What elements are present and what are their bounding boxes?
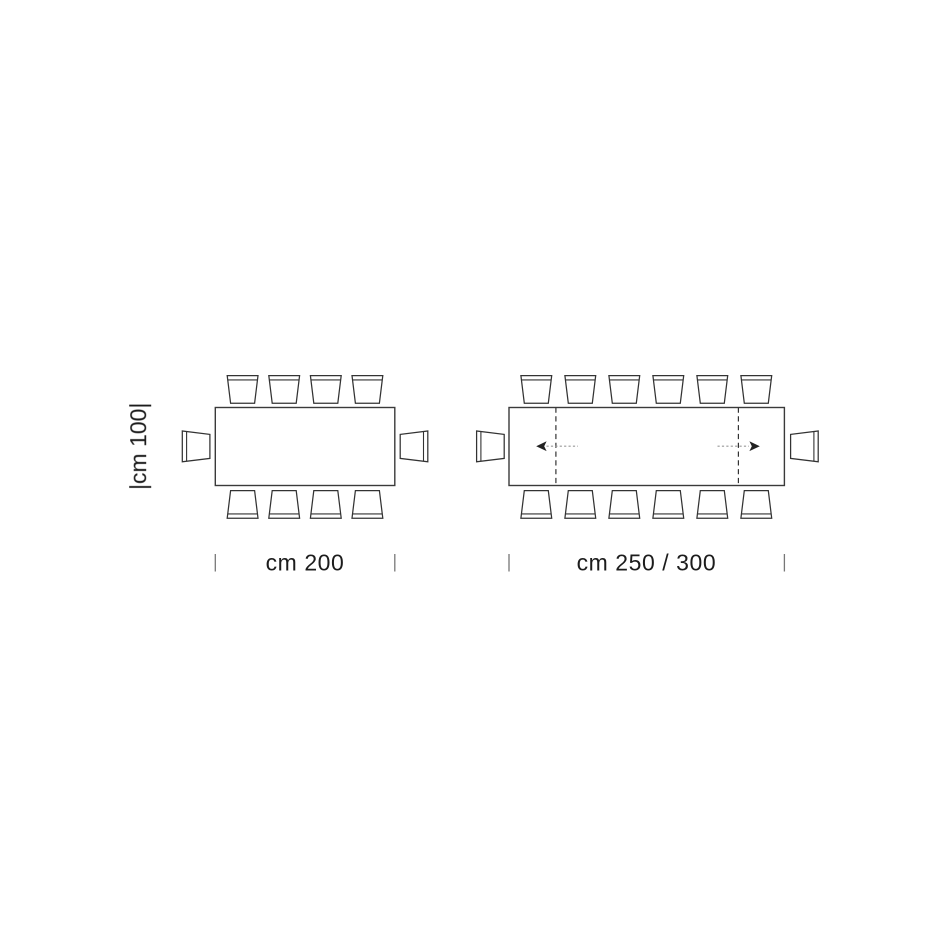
svg-text:|cm 100|: |cm 100| bbox=[125, 403, 151, 490]
svg-text:cm 250 / 300: cm 250 / 300 bbox=[577, 550, 717, 576]
svg-text:cm 200: cm 200 bbox=[266, 550, 345, 576]
